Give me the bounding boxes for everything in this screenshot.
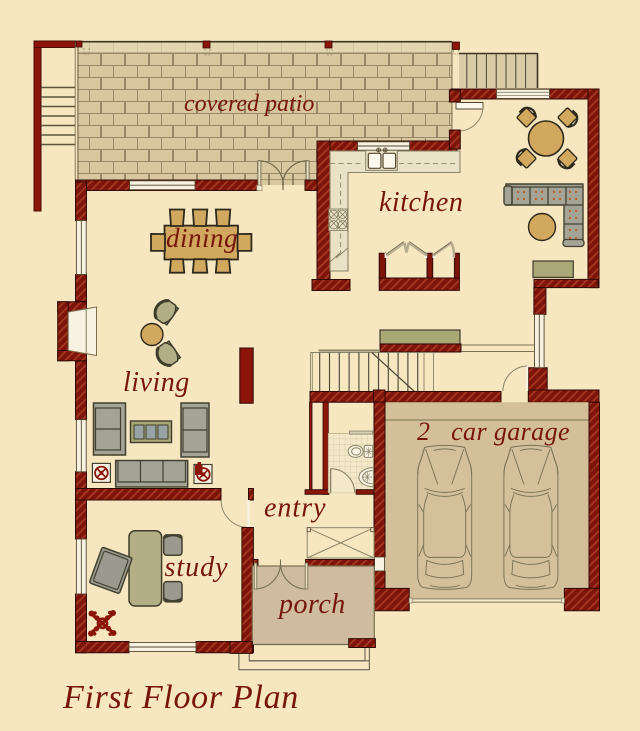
svg-text:covered patio: covered patio bbox=[184, 91, 314, 117]
svg-text:dining: dining bbox=[166, 223, 238, 253]
svg-text:porch: porch bbox=[277, 589, 346, 620]
svg-text:living: living bbox=[123, 367, 190, 398]
svg-text:2 car garage: 2 car garage bbox=[417, 417, 570, 446]
svg-text:entry: entry bbox=[264, 493, 327, 524]
svg-text:First Floor Plan: First Floor Plan bbox=[62, 679, 299, 716]
svg-text:study: study bbox=[165, 552, 229, 583]
svg-text:kitchen: kitchen bbox=[379, 187, 463, 218]
